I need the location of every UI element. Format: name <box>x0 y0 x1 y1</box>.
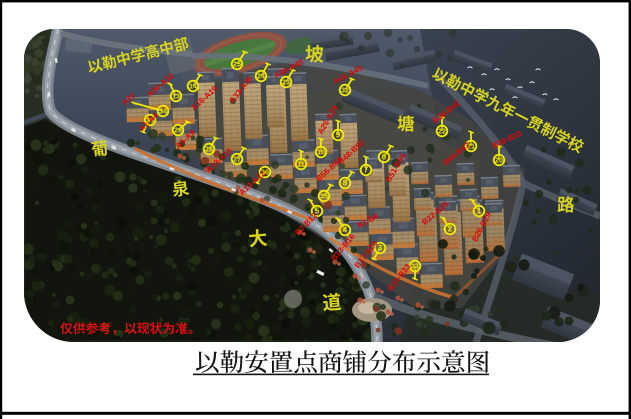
svg-text:20: 20 <box>495 155 503 164</box>
svg-text:33: 33 <box>411 261 419 270</box>
svg-text:29: 29 <box>174 125 182 134</box>
svg-text:24: 24 <box>257 71 265 80</box>
svg-text:1: 1 <box>477 206 482 215</box>
svg-text:5: 5 <box>315 206 320 215</box>
svg-text:14: 14 <box>189 81 197 90</box>
svg-text:25: 25 <box>233 59 241 68</box>
svg-text:2: 2 <box>448 224 453 233</box>
svg-text:28: 28 <box>205 144 213 153</box>
svg-text:34: 34 <box>159 106 167 115</box>
svg-text:8: 8 <box>343 178 348 187</box>
svg-text:13: 13 <box>172 91 180 100</box>
svg-text:10: 10 <box>317 147 325 156</box>
svg-text:22: 22 <box>438 126 446 135</box>
svg-text:7: 7 <box>364 165 369 174</box>
svg-text:11: 11 <box>297 159 305 168</box>
svg-text:6: 6 <box>382 152 387 161</box>
svg-text:23: 23 <box>282 77 290 86</box>
svg-text:35: 35 <box>320 191 328 200</box>
svg-text:9: 9 <box>336 130 341 139</box>
svg-text:4: 4 <box>343 225 348 234</box>
svg-text:32: 32 <box>341 85 349 94</box>
svg-text:27: 27 <box>233 154 241 163</box>
